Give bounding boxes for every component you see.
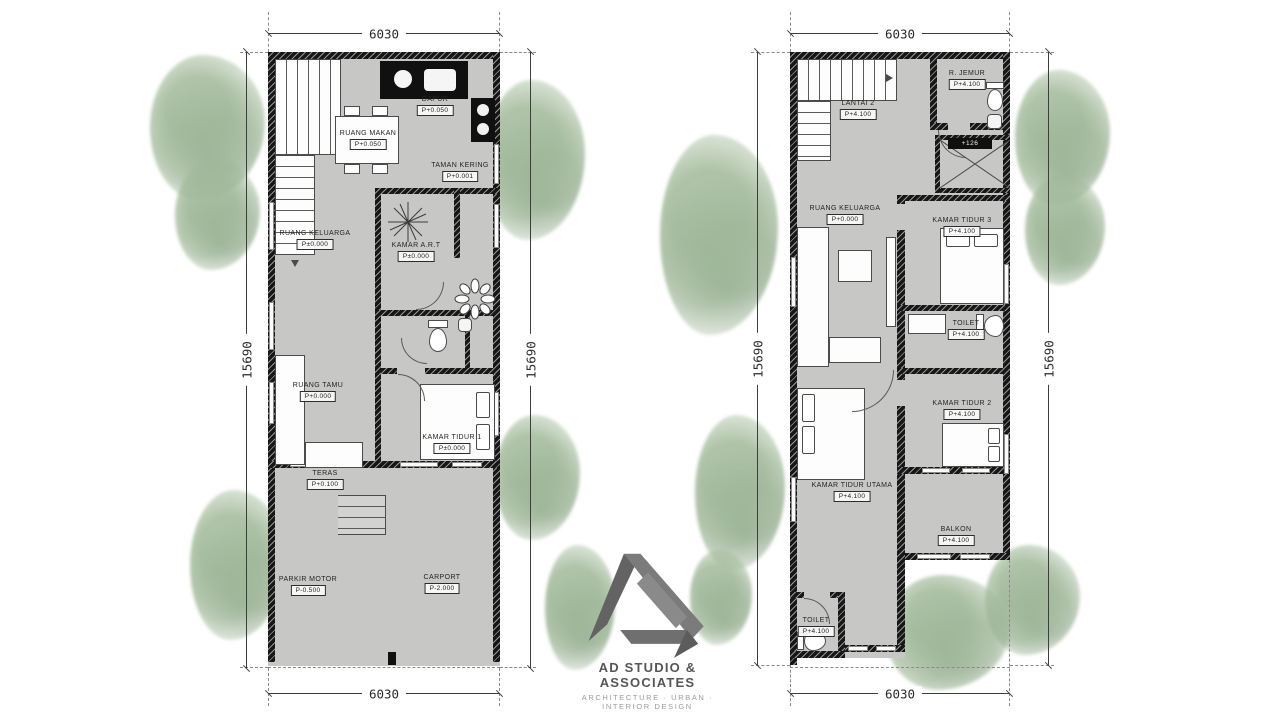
room-name: CARPORT	[424, 574, 461, 582]
room-elevation: P+4.100	[938, 535, 975, 546]
room-label-ruang-keluarga-2: RUANG KELUARGA P+0.000	[810, 205, 881, 225]
room-elevation: P-0.500	[291, 585, 326, 596]
sink-icon	[394, 70, 412, 88]
room-name: KAMAR TIDUR 2	[932, 400, 991, 408]
stairs-icon	[797, 101, 831, 161]
tv-console-icon	[886, 237, 896, 327]
dimension-value: 15690	[750, 333, 765, 385]
window-icon	[962, 468, 990, 473]
wall	[454, 188, 460, 258]
lot-boundary-line	[268, 667, 500, 668]
room-label-lantai-2: LANTAI 2 P+4.100	[840, 100, 877, 120]
room-label-toilet-mid: TOILET P+4.100	[948, 320, 985, 340]
extension-line	[499, 668, 500, 706]
steps-icon	[338, 495, 386, 535]
flower-icon	[454, 278, 496, 320]
dimension-left: 15690	[757, 52, 758, 665]
toilet-icon	[987, 89, 1003, 111]
window-icon	[848, 646, 868, 651]
room-name: TAMAN KERING	[431, 162, 489, 170]
room-name: TOILET	[798, 617, 835, 625]
room-label-ruang-tamu: RUANG TAMU P+0.000	[293, 382, 343, 402]
dimension-value: 15690	[1041, 333, 1056, 385]
sink-icon	[987, 114, 1002, 129]
lot-boundary-line	[790, 667, 1010, 668]
pillow-icon	[476, 392, 490, 418]
sofa-icon	[829, 337, 881, 363]
room-elevation: P+0.001	[442, 171, 479, 182]
room-name: LANTAI 2	[840, 100, 877, 108]
room-label-kamar-tidur-3: KAMAR TIDUR 3 P+4.100	[932, 217, 991, 237]
coffee-table-icon	[838, 250, 872, 282]
room-elevation: P+4.100	[798, 626, 835, 637]
stair-direction-arrow-icon	[886, 74, 893, 82]
window-icon	[922, 468, 950, 473]
window-icon	[269, 302, 274, 350]
dimension-top: 6030	[790, 33, 1010, 34]
extension-line	[268, 668, 269, 706]
extension-line	[240, 52, 268, 53]
plant-icon	[386, 200, 430, 244]
room-elevation: P±0.000	[398, 251, 434, 262]
stair-direction-arrow-icon	[291, 260, 299, 267]
wall	[930, 52, 937, 130]
door-opening	[897, 204, 905, 230]
dimension-right: 15690	[1048, 52, 1049, 665]
room-elevation: P+4.100	[948, 329, 985, 340]
room-label-toilet-bottom: TOILET P+4.100	[798, 617, 835, 637]
room-name: RUANG KELUARGA	[810, 205, 881, 213]
pillow-icon	[802, 394, 815, 422]
dimension-bottom: 6030	[268, 693, 500, 694]
burner-ring-icon	[477, 123, 489, 135]
room-name: RUANG TAMU	[293, 382, 343, 390]
room-name: TOILET	[948, 320, 985, 328]
wall	[425, 368, 500, 374]
studio-brand-block: AD STUDIO & ASSOCIATES ARCHITECTURE · UR…	[565, 548, 730, 711]
sofa-icon	[275, 355, 305, 465]
wall	[897, 195, 905, 652]
room-name: DAPUR	[417, 96, 454, 104]
room-elevation: P+0.050	[417, 105, 454, 116]
room-elevation: P+4.100	[944, 226, 981, 237]
extension-line	[790, 665, 791, 706]
window-icon	[494, 204, 499, 248]
window-icon	[269, 382, 274, 424]
studio-tagline: ARCHITECTURE · URBAN · INTERIOR DESIGN	[565, 693, 730, 711]
dimension-value: 6030	[878, 686, 922, 701]
wall	[930, 123, 948, 130]
window-icon	[791, 477, 796, 522]
room-label-kamar-tidur-2: KAMAR TIDUR 2 P+4.100	[932, 400, 991, 420]
wall	[790, 52, 797, 665]
room-label-parkir-motor: PARKIR MOTOR P-0.500	[279, 576, 337, 596]
room-label-ruang-makan: RUANG MAKAN P+0.050	[340, 130, 397, 150]
sofa-icon	[305, 442, 363, 468]
room-label-dapur: DAPUR P+0.050	[417, 96, 454, 116]
stairs-icon	[275, 59, 341, 155]
room-elevation: P+0.050	[350, 139, 387, 150]
room-elevation: P+4.100	[834, 491, 871, 502]
room-elevation: P-2.000	[425, 583, 460, 594]
wall	[897, 368, 1010, 374]
ground-floor-plan: DAPUR P+0.050 RUANG MAKAN P+0.050 TAMAN …	[268, 52, 500, 668]
room-elevation: P+0.000	[827, 214, 864, 225]
studio-name: AD STUDIO & ASSOCIATES	[565, 660, 730, 690]
window-icon	[960, 554, 990, 559]
door-opening	[897, 380, 905, 406]
chair-icon	[372, 164, 388, 174]
room-label-kamar-tidur-1: KAMAR TIDUR 1 P±0.000	[422, 434, 481, 454]
stairs-icon	[797, 59, 897, 101]
room-name: KAMAR TIDUR 1	[422, 434, 481, 442]
room-name: KAMAR A.R.T	[392, 242, 441, 250]
dimension-value: 6030	[362, 686, 406, 701]
pillow-icon	[802, 426, 815, 454]
kitchen-counter-icon	[380, 61, 468, 99]
pillow-icon	[988, 446, 1000, 462]
room-elevation: P+4.100	[840, 109, 877, 120]
dimension-value: 6030	[362, 26, 406, 41]
window-icon	[1004, 434, 1009, 474]
dimension-value: 6030	[878, 26, 922, 41]
wall	[790, 52, 1010, 59]
room-label-balkon: BALKON P+4.100	[938, 526, 975, 546]
room-label-kamar-art: KAMAR A.R.T P±0.000	[392, 242, 441, 262]
toilet-icon	[984, 315, 1004, 337]
room-name: RUANG MAKAN	[340, 130, 397, 138]
room-elevation: P±0.000	[297, 239, 333, 250]
room-label-kamar-tidur-utama: KAMAR TIDUR UTAMA P+4.100	[812, 482, 893, 502]
vanity-counter-icon	[908, 314, 946, 334]
window-icon	[452, 462, 482, 467]
toilet-icon	[429, 328, 447, 352]
upper-floor-plan: +126 LANTAI 2 P+4.100	[790, 52, 1010, 665]
sofa-icon	[797, 227, 829, 367]
window-icon	[876, 646, 896, 651]
dimension-bottom: 6030	[790, 693, 1010, 694]
wall	[790, 651, 845, 658]
dimension-top: 6030	[268, 33, 500, 34]
chair-icon	[372, 106, 388, 116]
room-name: RUANG KELUARGA	[280, 230, 351, 238]
tree-watercolor-icon	[485, 80, 585, 240]
chair-icon	[344, 164, 360, 174]
wall	[935, 188, 1010, 193]
dimension-right: 15690	[530, 52, 531, 668]
wall	[268, 52, 500, 59]
window-icon	[917, 554, 951, 559]
floor-plan-sheet: DAPUR P+0.050 RUANG MAKAN P+0.050 TAMAN …	[0, 0, 1280, 720]
room-label-ruang-keluarga: RUANG KELUARGA P±0.000	[280, 230, 351, 250]
wall	[897, 195, 1010, 201]
wall	[268, 52, 275, 662]
wall	[375, 316, 381, 462]
room-elevation: P±0.000	[434, 443, 470, 454]
room-label-carport: CARPORT P-2.000	[424, 574, 461, 594]
window-icon	[400, 462, 438, 467]
ad-monogram-logo-icon	[583, 548, 713, 660]
window-icon	[269, 202, 274, 250]
wall	[375, 188, 381, 316]
burner-ring-icon	[477, 104, 489, 116]
room-elevation: P+0.000	[300, 391, 337, 402]
wall	[375, 188, 500, 194]
tree-watercolor-icon	[495, 415, 580, 540]
sink-icon	[424, 69, 456, 91]
toilet-tank-icon	[428, 320, 448, 328]
extension-line	[1009, 560, 1010, 706]
room-label-jemur: R. JEMUR P+4.100	[949, 70, 986, 90]
window-icon	[494, 144, 499, 184]
dimension-left: 15690	[246, 52, 247, 668]
tree-watercolor-icon	[175, 160, 260, 270]
dimension-value: 15690	[239, 334, 254, 386]
wall	[838, 592, 845, 652]
gate-post	[388, 652, 396, 665]
room-elevation: P+0.100	[307, 479, 344, 490]
room-name: KAMAR TIDUR UTAMA	[812, 482, 893, 490]
sink-icon	[458, 318, 472, 332]
room-elevation: P+4.100	[944, 409, 981, 420]
tree-watercolor-icon	[660, 135, 778, 335]
pillow-icon	[988, 428, 1000, 444]
void-level-tag: +126	[948, 138, 992, 149]
room-elevation: P+4.100	[949, 79, 986, 90]
tree-watercolor-icon	[1025, 175, 1105, 285]
stove-icon	[471, 98, 495, 142]
window-icon	[1004, 264, 1009, 304]
wall	[790, 592, 804, 598]
window-icon	[791, 257, 796, 307]
wall	[897, 305, 1010, 311]
room-name: KAMAR TIDUR 3	[932, 217, 991, 225]
chair-icon	[344, 106, 360, 116]
room-name: TERAS	[307, 470, 344, 478]
wall	[897, 467, 1010, 474]
dimension-value: 15690	[523, 334, 538, 386]
toilet-tank-icon	[986, 82, 1004, 89]
room-name: R. JEMUR	[949, 70, 986, 78]
room-label-teras: TERAS P+0.100	[307, 470, 344, 490]
room-name: BALKON	[938, 526, 975, 534]
tree-watercolor-icon	[695, 415, 785, 570]
room-label-taman-kering: TAMAN KERING P+0.001	[431, 162, 489, 182]
room-name: PARKIR MOTOR	[279, 576, 337, 584]
